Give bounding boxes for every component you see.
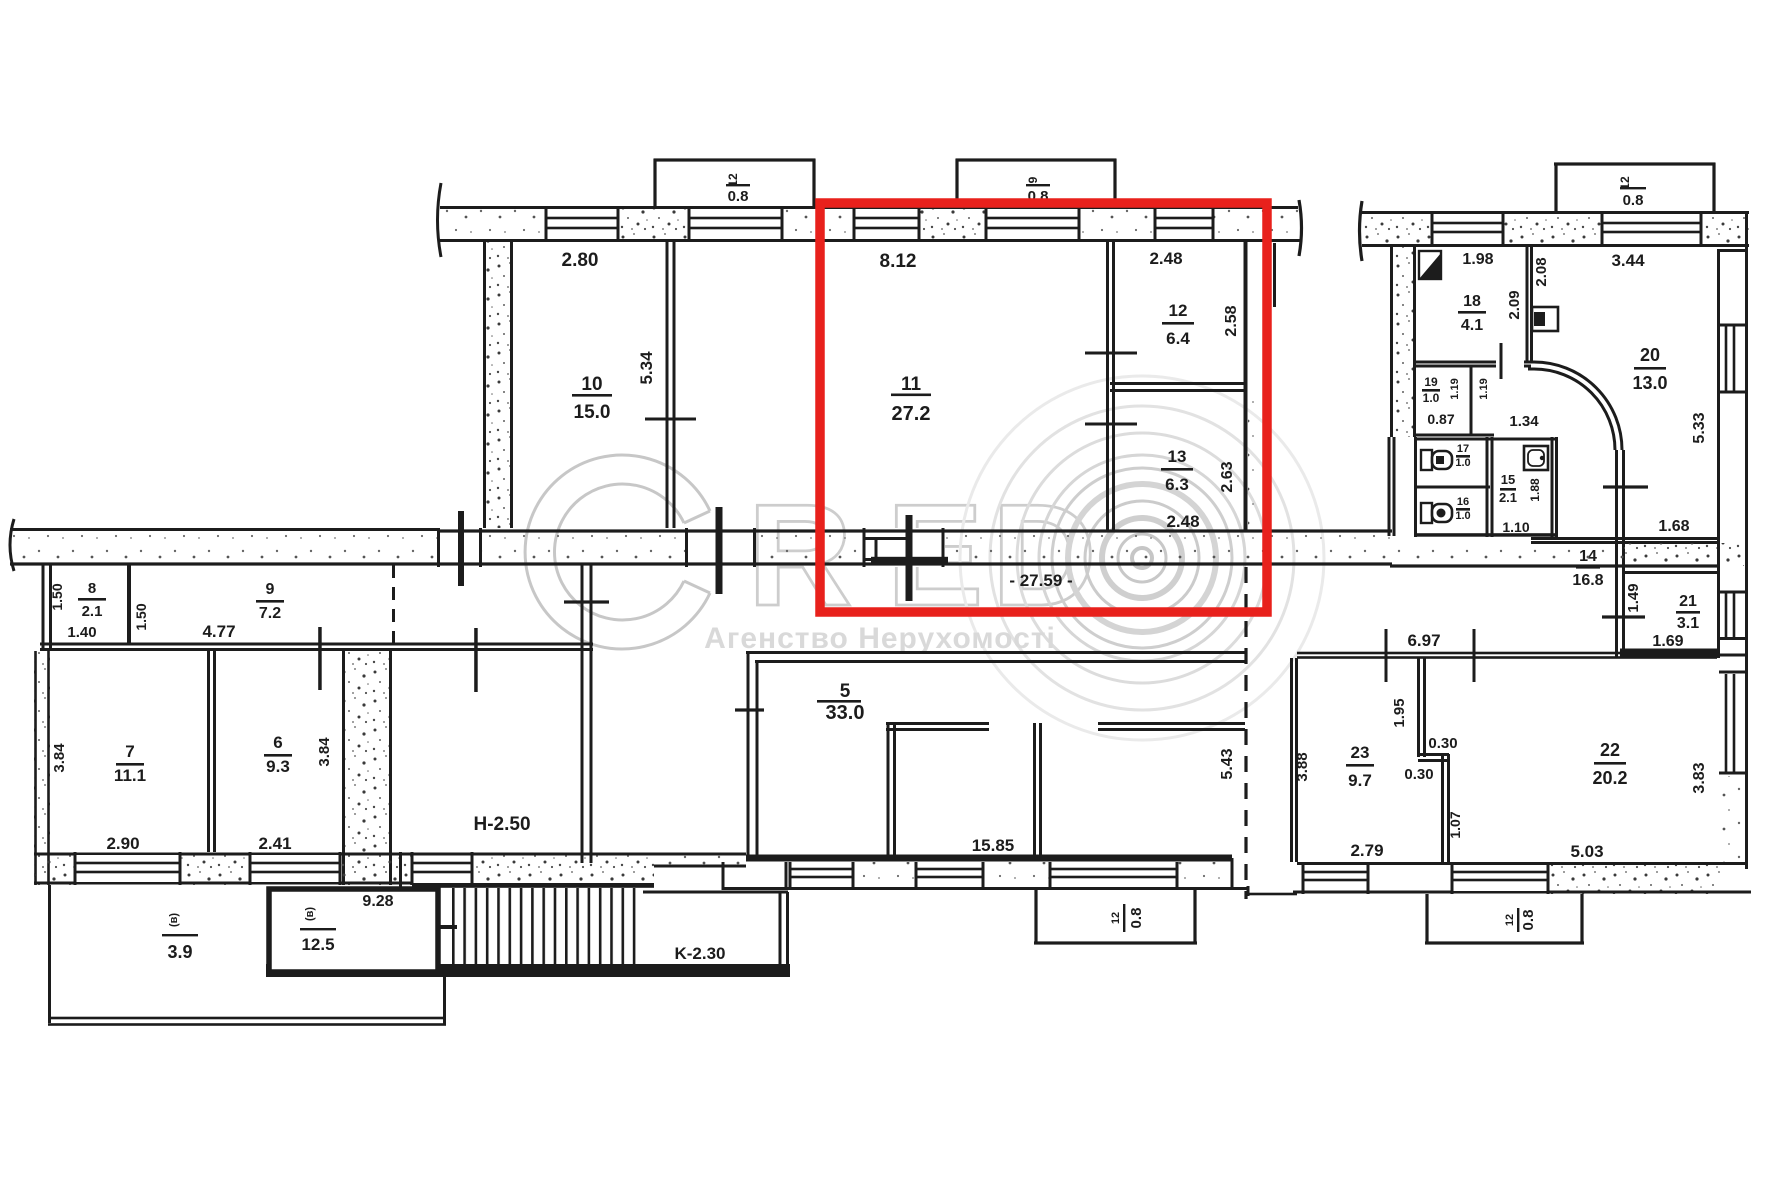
svg-text:2.80: 2.80: [562, 250, 599, 271]
svg-text:2.58: 2.58: [1223, 305, 1240, 336]
svg-text:8.12: 8.12: [880, 251, 917, 272]
svg-text:1.34: 1.34: [1509, 413, 1539, 430]
svg-text:12: 12: [1504, 914, 1516, 926]
svg-text:17: 17: [1457, 443, 1469, 455]
svg-text:27.2: 27.2: [892, 403, 931, 425]
svg-text:1.68: 1.68: [1658, 518, 1689, 535]
svg-text:4.77: 4.77: [202, 622, 235, 641]
svg-text:0.30: 0.30: [1428, 735, 1457, 752]
svg-text:7.2: 7.2: [259, 605, 281, 622]
svg-text:(в): (в): [304, 907, 316, 921]
svg-text:12.5: 12.5: [301, 935, 334, 954]
svg-text:33.0: 33.0: [826, 702, 865, 724]
svg-text:9: 9: [266, 581, 275, 598]
svg-text:2.48: 2.48: [1166, 512, 1199, 531]
svg-text:1.0: 1.0: [1423, 391, 1440, 405]
svg-text:2.79: 2.79: [1350, 841, 1383, 860]
svg-text:2.63: 2.63: [1219, 461, 1236, 492]
svg-text:23: 23: [1351, 743, 1370, 762]
svg-text:0.8: 0.8: [728, 188, 749, 205]
svg-text:18: 18: [1463, 293, 1481, 310]
svg-text:9.28: 9.28: [362, 893, 393, 910]
svg-text:K-2.30: K-2.30: [674, 944, 725, 963]
svg-text:11: 11: [901, 374, 922, 395]
svg-text:22: 22: [1600, 740, 1620, 760]
svg-text:13: 13: [1168, 447, 1187, 466]
svg-text:3.44: 3.44: [1611, 251, 1645, 270]
svg-text:11.1: 11.1: [114, 766, 146, 785]
svg-text:3.88: 3.88: [1294, 752, 1311, 781]
svg-text:20: 20: [1640, 345, 1660, 365]
svg-text:2.90: 2.90: [106, 834, 139, 853]
svg-text:0.8: 0.8: [1520, 910, 1537, 931]
svg-text:Агенство Нерухомості: Агенство Нерухомості: [704, 622, 1056, 655]
svg-text:6.3: 6.3: [1165, 475, 1189, 494]
svg-text:2.08: 2.08: [1533, 257, 1550, 286]
svg-text:H-2.50: H-2.50: [473, 814, 530, 835]
svg-text:1.19: 1.19: [1449, 378, 1461, 399]
svg-text:15.0: 15.0: [574, 402, 611, 423]
svg-text:2.41: 2.41: [258, 834, 291, 853]
svg-text:1.69: 1.69: [1652, 633, 1683, 650]
svg-text:1.49: 1.49: [1625, 583, 1642, 612]
svg-text:6: 6: [273, 733, 282, 752]
svg-text:9: 9: [1026, 176, 1040, 183]
svg-text:0.8: 0.8: [1623, 192, 1644, 209]
svg-text:3.84: 3.84: [51, 743, 68, 773]
svg-text:1.40: 1.40: [67, 624, 96, 641]
svg-text:1.19: 1.19: [1478, 378, 1490, 399]
svg-text:5.34: 5.34: [637, 351, 656, 385]
svg-text:1.07: 1.07: [1447, 811, 1463, 838]
svg-text:3.84: 3.84: [316, 737, 333, 767]
svg-text:20.2: 20.2: [1592, 768, 1627, 788]
svg-text:19: 19: [1424, 375, 1438, 389]
svg-text:2.09: 2.09: [1506, 290, 1523, 319]
svg-text:16.8: 16.8: [1572, 572, 1603, 589]
svg-text:1.0: 1.0: [1455, 457, 1470, 469]
svg-text:5: 5: [840, 681, 851, 702]
svg-text:(в): (в): [168, 913, 180, 927]
svg-text:5.03: 5.03: [1570, 842, 1603, 861]
svg-text:16: 16: [1457, 496, 1469, 508]
svg-text:1.50: 1.50: [133, 603, 149, 630]
svg-text:6.4: 6.4: [1166, 329, 1190, 348]
svg-text:1.50: 1.50: [49, 583, 65, 610]
svg-text:2.1: 2.1: [82, 603, 103, 620]
svg-text:15: 15: [1501, 472, 1515, 487]
svg-text:4.1: 4.1: [1461, 317, 1483, 334]
svg-text:21: 21: [1679, 593, 1697, 610]
svg-text:- 27.59 -: - 27.59 -: [1009, 571, 1072, 590]
svg-text:9.3: 9.3: [266, 757, 290, 776]
svg-text:1.0: 1.0: [1455, 510, 1470, 522]
svg-text:0.30: 0.30: [1404, 766, 1433, 783]
svg-text:13.0: 13.0: [1632, 373, 1667, 393]
svg-text:5.33: 5.33: [1691, 412, 1708, 443]
svg-text:2.1: 2.1: [1499, 490, 1517, 505]
svg-text:3.83: 3.83: [1691, 762, 1708, 793]
svg-text:1.10: 1.10: [1502, 519, 1529, 535]
svg-text:8: 8: [88, 580, 96, 597]
svg-text:5.43: 5.43: [1219, 748, 1236, 779]
svg-text:3.9: 3.9: [167, 942, 192, 962]
svg-text:0.8: 0.8: [1128, 908, 1145, 929]
svg-text:1.88: 1.88: [1528, 478, 1542, 502]
svg-text:0.87: 0.87: [1427, 411, 1454, 427]
svg-text:2.48: 2.48: [1149, 249, 1182, 268]
svg-text:15.85: 15.85: [972, 836, 1015, 855]
svg-text:1.98: 1.98: [1462, 251, 1493, 268]
svg-text:12: 12: [1110, 912, 1122, 924]
svg-text:7: 7: [125, 742, 134, 761]
svg-text:12: 12: [1169, 301, 1188, 320]
svg-text:1.95: 1.95: [1391, 698, 1408, 727]
svg-text:6.97: 6.97: [1407, 631, 1440, 650]
svg-text:10: 10: [581, 374, 602, 395]
svg-text:3.1: 3.1: [1677, 615, 1699, 632]
svg-text:9.7: 9.7: [1348, 771, 1372, 790]
